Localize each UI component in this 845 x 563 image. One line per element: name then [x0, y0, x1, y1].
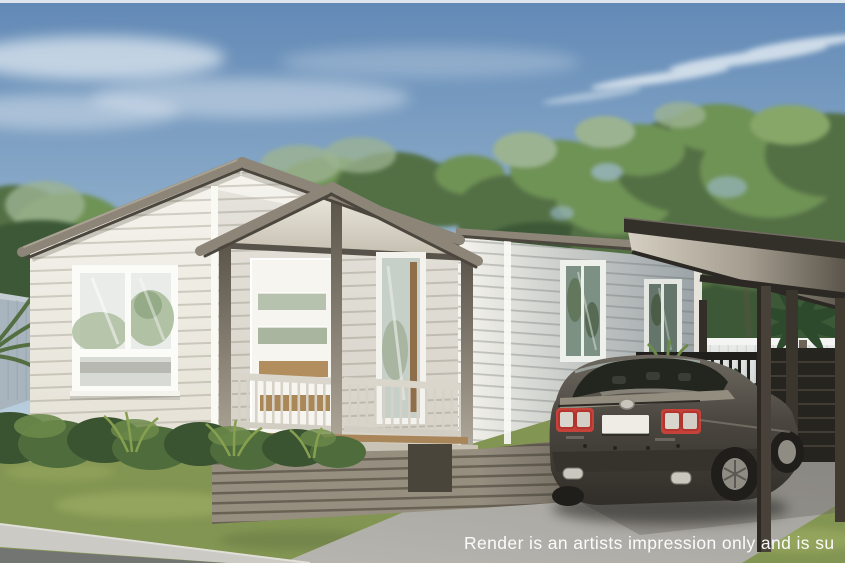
- car-model-badge-left: [566, 436, 584, 439]
- wall-corner-trim: [504, 240, 511, 444]
- car-taillight-left: [556, 408, 594, 432]
- porch-post-center: [331, 198, 342, 450]
- car-wheel-rear-right: [711, 447, 759, 501]
- car-badge: [620, 399, 634, 409]
- render-viewport: Render is an artists impression only and…: [0, 0, 845, 563]
- car-wheel-rear-left: [552, 486, 584, 506]
- car-wheel-front-right: [770, 431, 804, 473]
- window-sill: [70, 391, 180, 396]
- watermark-text: Render is an artists impression only and…: [464, 533, 835, 553]
- picture-window: [70, 265, 180, 400]
- right-wing-window-1: [560, 260, 606, 362]
- car-model-badge-right: [655, 438, 675, 441]
- carport-post-edge: [835, 298, 845, 522]
- image-top-edge: [0, 0, 845, 3]
- license-plate: [602, 415, 649, 434]
- car-taillight-right: [661, 409, 701, 434]
- porch-post-right: [461, 256, 473, 450]
- gable-corner-trim: [211, 186, 218, 452]
- house-render-image: Render is an artists impression only and…: [0, 0, 845, 563]
- door-glass-slat-1: [258, 293, 326, 310]
- door-glass-slat-2: [258, 327, 327, 344]
- right-wing-window-2: [644, 279, 682, 362]
- porch-post-left: [219, 244, 231, 452]
- car-exhaust-left: [563, 468, 583, 479]
- car-exhaust-right: [671, 472, 691, 484]
- subfloor-recess: [408, 444, 452, 492]
